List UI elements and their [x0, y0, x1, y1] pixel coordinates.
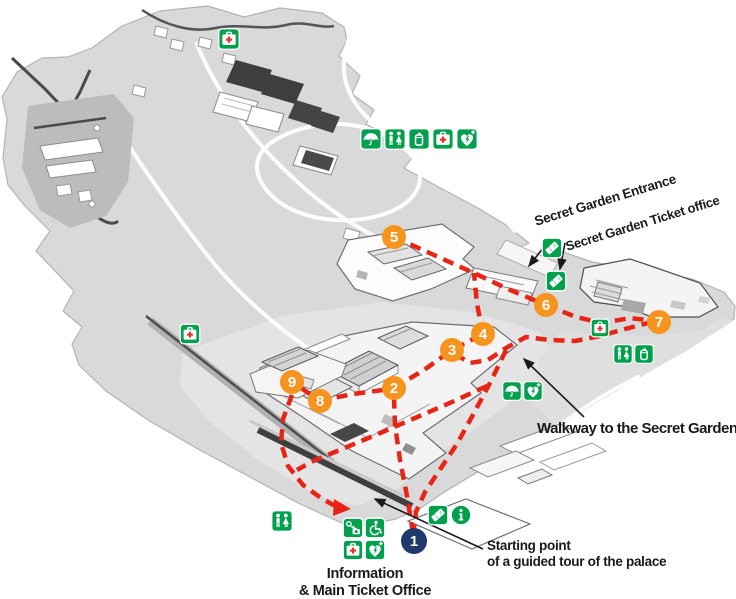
drink-icon	[635, 345, 654, 364]
toilets-icon	[385, 129, 406, 150]
aed-icon	[365, 540, 385, 560]
information-office-label: Information & Main Ticket Office	[282, 566, 448, 599]
first-aid-icon	[343, 540, 363, 560]
tour-stop-1: 1	[401, 528, 427, 554]
palace-map-graphic	[0, 0, 736, 599]
tour-stop-2: 2	[382, 376, 406, 400]
first-aid-icon	[433, 129, 454, 150]
information-office-line1: Information	[282, 566, 448, 583]
walkway-label: Walkway to the Secret Garden	[537, 420, 736, 438]
tour-stop-9: 9	[280, 370, 304, 394]
drink-icon	[409, 129, 430, 150]
toilets-icon	[614, 345, 633, 364]
ticket-icon	[542, 238, 562, 258]
ticket-icon	[546, 271, 566, 291]
information-office-line2: & Main Ticket Office	[282, 583, 448, 599]
palace-tour-map: 123456789 Secret Garden Entrance Secret …	[0, 0, 736, 599]
first-aid-icon	[180, 324, 200, 344]
starting-point-label: Starting point of a guided tour of the p…	[487, 538, 666, 570]
tour-stop-4: 4	[471, 322, 495, 346]
aed-icon	[457, 129, 478, 150]
tour-stop-7: 7	[647, 310, 671, 334]
starting-point-line1: Starting point	[487, 538, 666, 554]
umbrella-icon	[361, 129, 382, 150]
ticket-icon	[428, 505, 448, 525]
tour-stop-8: 8	[308, 389, 332, 413]
locker-icon	[343, 518, 363, 538]
tour-stop-5: 5	[382, 225, 406, 249]
first-aid-icon	[591, 319, 609, 337]
toilets-icon	[272, 511, 293, 532]
starting-point-line2: of a guided tour of the palace	[487, 554, 666, 570]
info-icon	[451, 505, 471, 525]
aed-icon	[524, 382, 543, 401]
first-aid-icon	[219, 29, 240, 50]
wheelchair-icon	[365, 518, 385, 538]
tour-stop-3: 3	[440, 338, 464, 362]
tour-stop-6: 6	[534, 293, 558, 317]
umbrella-icon	[503, 382, 522, 401]
